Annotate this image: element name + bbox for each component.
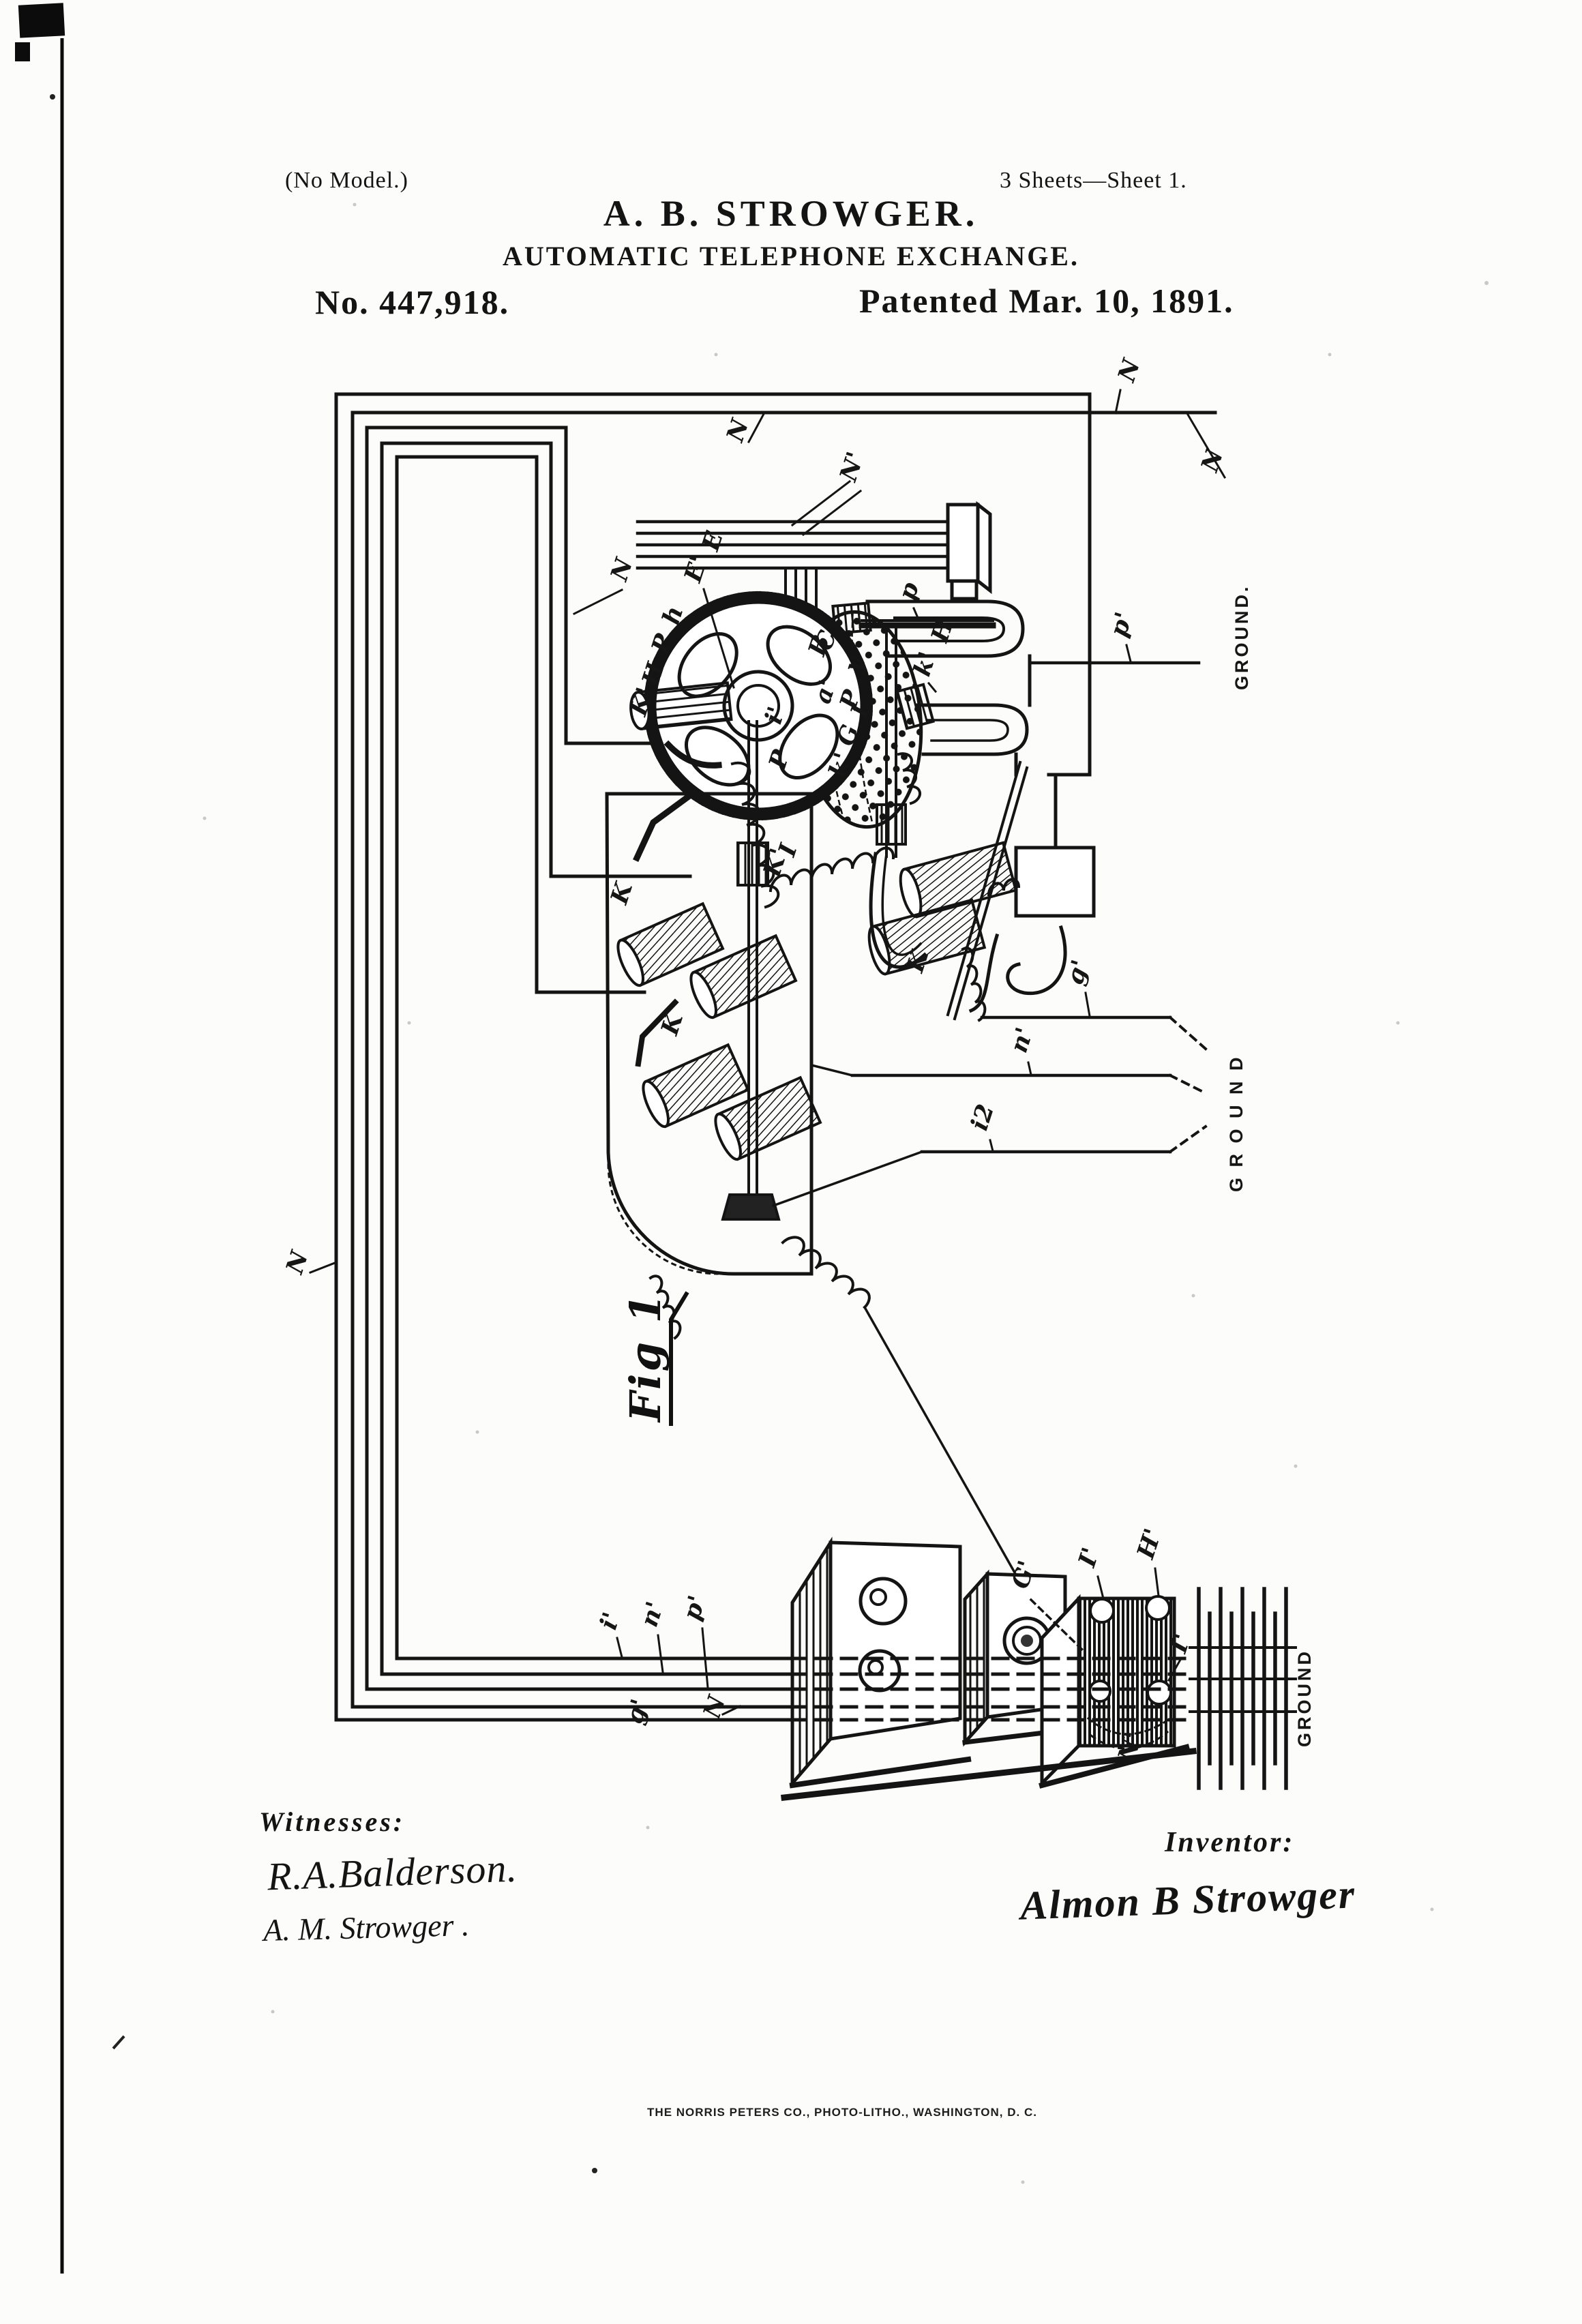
part-label: p': [1105, 609, 1139, 640]
part-label: n': [636, 1598, 670, 1630]
part-label: E: [696, 527, 729, 554]
part-label: N': [834, 448, 870, 485]
part-label: n': [1005, 1024, 1039, 1056]
inventor-heading: Inventor:: [1165, 1826, 1294, 1859]
part-label: N: [605, 554, 639, 585]
part-label: K: [655, 1009, 689, 1039]
part-labels: N N' N N N B E E' h P H K' C p H k' y a'…: [280, 355, 1229, 1766]
printer-imprint: THE NORRIS PETERS CO., PHOTO-LITHO., WAS…: [0, 2106, 1582, 2119]
helical-spring: [651, 754, 1019, 1338]
key-knob: [1090, 1599, 1114, 1622]
part-label: I': [1073, 1544, 1105, 1570]
part-label: p: [893, 578, 925, 603]
label-leader-lines: [310, 390, 1225, 1714]
ground-label: GROUND: [1294, 1649, 1315, 1747]
patent-sheet-page: (No Model.) 3 Sheets—Sheet 1. A. B. STRO…: [0, 0, 1582, 2324]
figure-label-text: Fig 1: [621, 1292, 670, 1423]
part-label: H': [1131, 1525, 1167, 1562]
ground-symbol: [1190, 1589, 1296, 1788]
part-label: i2: [966, 1101, 1000, 1133]
part-label: N: [1195, 445, 1229, 476]
key-knob: [1148, 1681, 1171, 1704]
witness-signature: A. M. Strowger .: [263, 1907, 470, 1948]
part-label: K: [605, 878, 638, 908]
part-label: N: [1112, 355, 1146, 386]
figure-label: Fig 1: [621, 1292, 687, 1426]
part-label: h: [657, 603, 689, 628]
subscriber-box-left: [792, 1543, 968, 1785]
part-label: p': [678, 1592, 712, 1624]
key-knob: [1146, 1596, 1169, 1620]
witnesses-heading: Witnesses:: [259, 1806, 405, 1838]
part-label: i': [595, 1609, 626, 1633]
part-label: N: [698, 1691, 732, 1723]
key-knob: [1090, 1681, 1110, 1701]
cable-terminal-block: [948, 505, 990, 599]
part-label: N: [280, 1247, 314, 1278]
patent-drawing-figure-1: N N' N N N B E E' h P H K' C p H k' y a'…: [0, 0, 1582, 2324]
ground-label: G R O U N D: [1226, 1054, 1247, 1192]
part-label: g': [621, 1696, 655, 1727]
ground-label: GROUND.: [1232, 584, 1252, 691]
wire-bundle-down: [786, 481, 861, 618]
ground-text-labels: GROUND. G R O U N D GROUND: [1226, 584, 1315, 1748]
witness-signature: R.A.Balderson.: [267, 1845, 518, 1900]
